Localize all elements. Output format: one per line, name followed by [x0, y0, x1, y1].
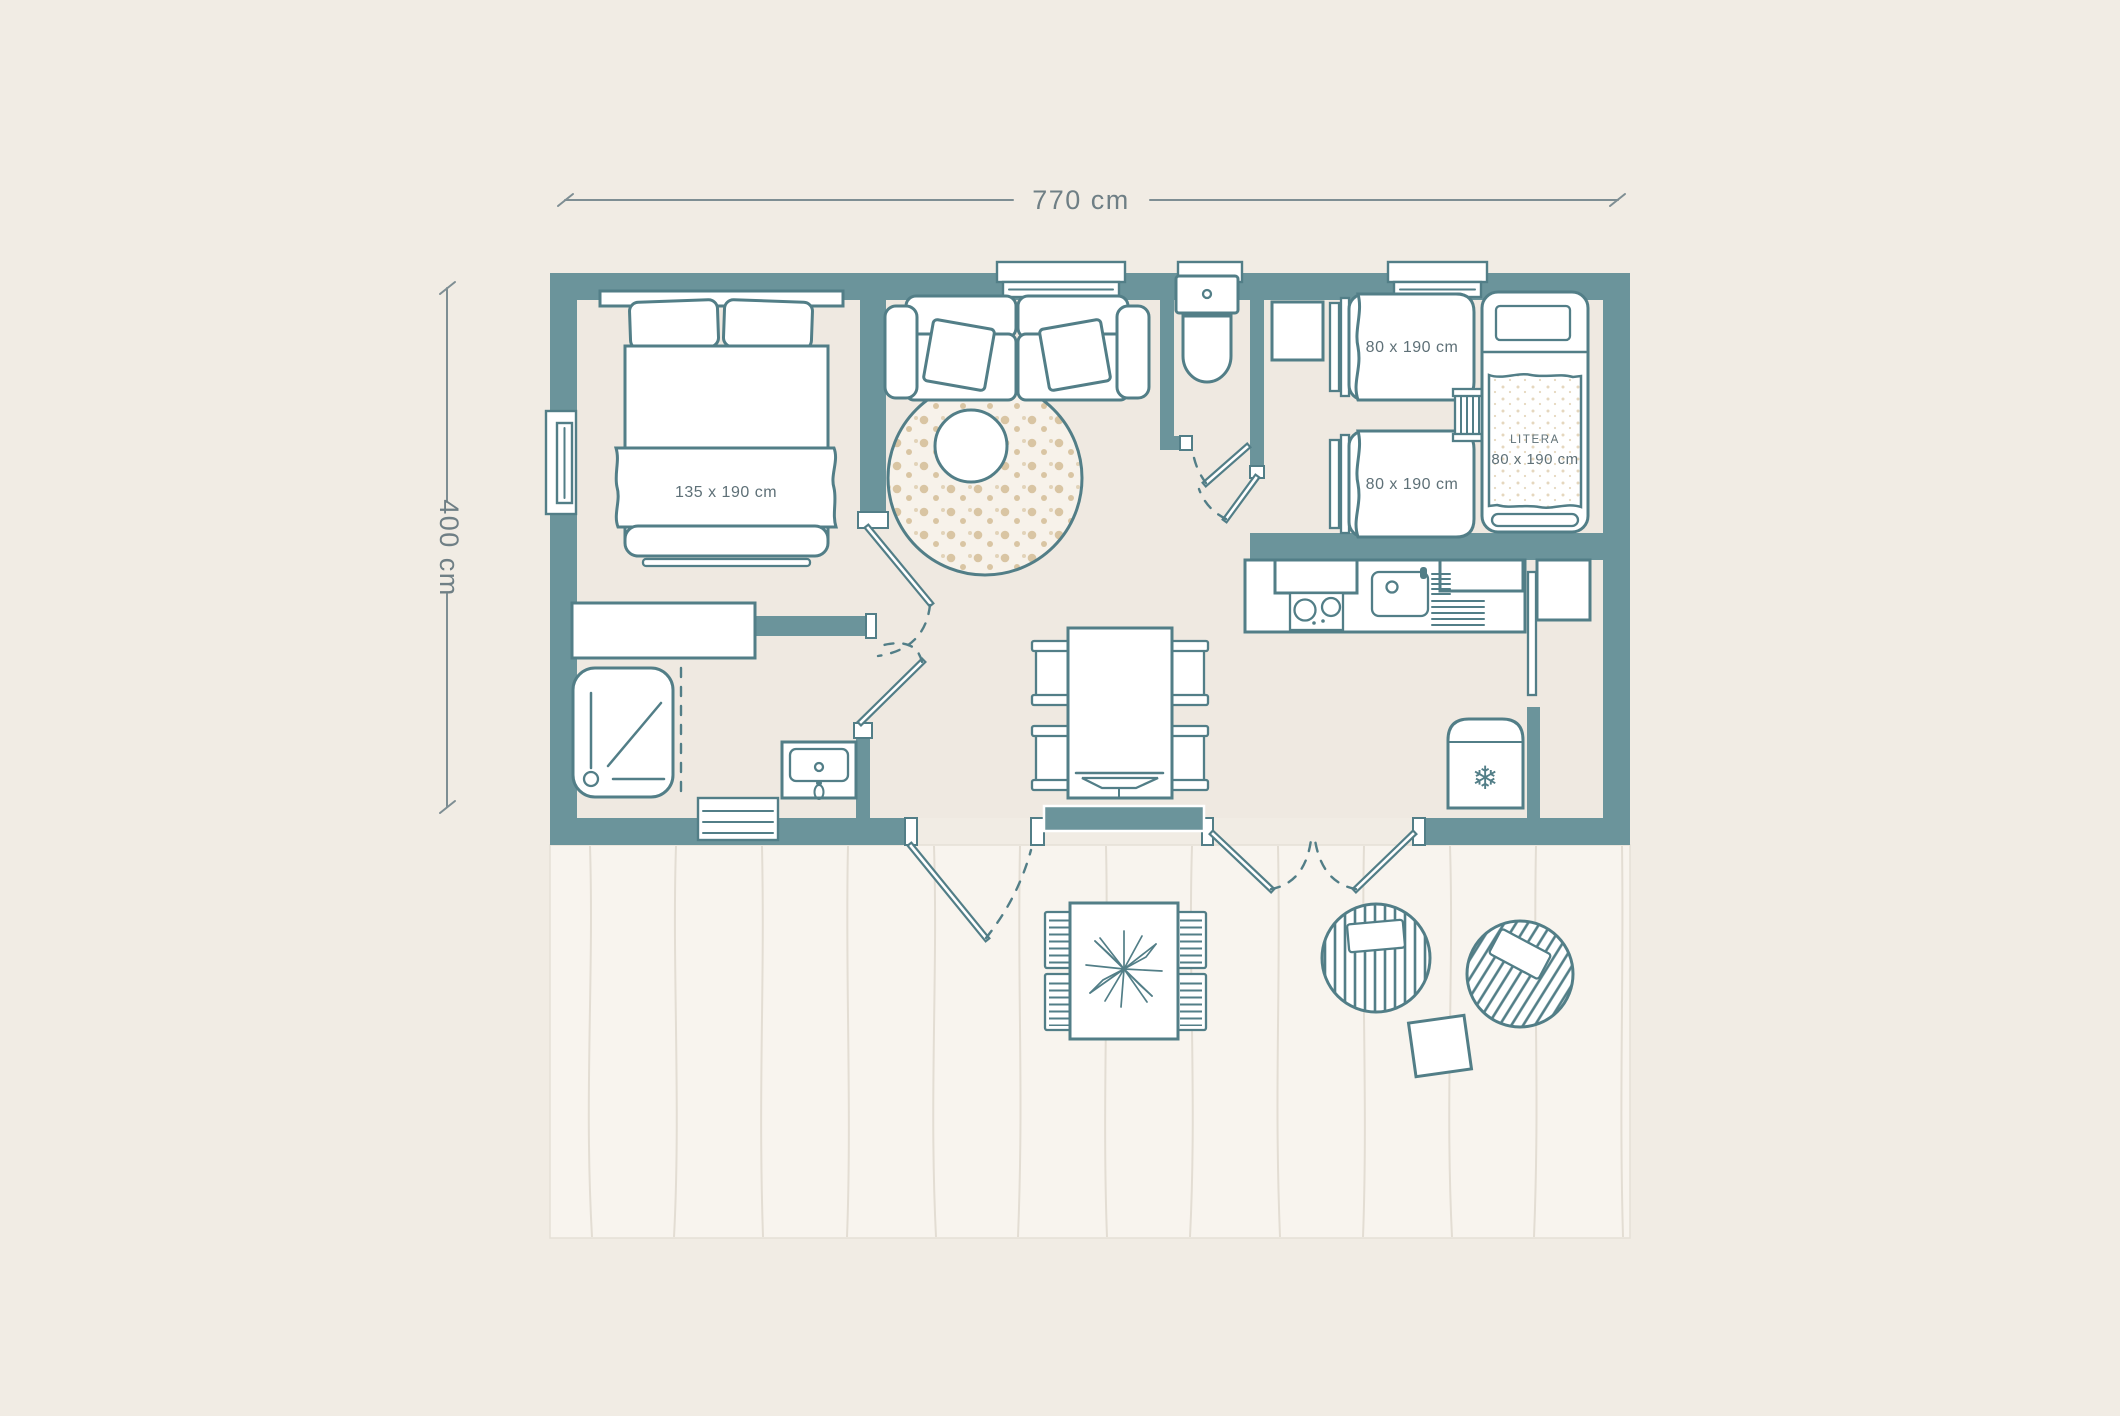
door-post: [1031, 818, 1044, 845]
bunk-bed: LITERA 80 x 190 cm: [1482, 292, 1588, 532]
pillow: [723, 299, 813, 349]
wall-bathroom-right: [1250, 300, 1264, 478]
pillow: [629, 299, 719, 349]
shower-tray: [573, 668, 673, 797]
throw-pillow: [923, 319, 995, 391]
floor-plan: 135 x 190 cm: [0, 0, 2120, 1416]
sofa-armrest: [885, 306, 917, 398]
width-dimension-label: 770 cm: [1032, 185, 1130, 215]
sink-faucet: [1420, 567, 1427, 579]
single-bed-bottom-label: 80 x 190 cm: [1366, 476, 1459, 493]
single-bed-bottom: 80 x 190 cm: [1330, 431, 1474, 537]
sink-drain: [1387, 582, 1398, 593]
lounge-chair: [1467, 921, 1573, 1027]
toilet: [1176, 276, 1238, 382]
wall-bottom-right: [1415, 818, 1630, 845]
coffee-table: [935, 410, 1007, 482]
footboard: [625, 526, 828, 556]
throw-pillow: [1039, 319, 1111, 391]
single-bed-top-label: 80 x 190 cm: [1366, 339, 1459, 356]
lounge-chair: [1322, 904, 1430, 1012]
door-post: [1180, 436, 1192, 450]
height-dimension-label: 400 cm: [434, 499, 464, 597]
sliding-door-panel: [1044, 806, 1204, 831]
washbasin: [782, 742, 856, 799]
sofa: [885, 296, 1149, 400]
bunk-bed-label-1: LITERA: [1510, 434, 1560, 446]
outdoor-chair: [1176, 974, 1206, 1030]
shower-drain: [584, 772, 598, 786]
window-left-wall: [546, 411, 576, 514]
bathroom: [1176, 276, 1238, 382]
open-door-leaf: [1528, 572, 1536, 695]
kitchen-sink: [1372, 567, 1428, 616]
floor-plan-canvas: 135 x 190 cm: [0, 0, 2120, 1416]
door-post: [905, 818, 917, 845]
bunk-bed-label-2: 80 x 190 cm: [1491, 451, 1578, 468]
bunk-pillow: [1496, 306, 1570, 340]
double-bed-label: 135 x 190 cm: [675, 484, 777, 501]
wall-partition: [755, 616, 866, 636]
bunk-ladder: [1453, 389, 1485, 441]
side-table: [1409, 1015, 1472, 1076]
door-post: [854, 723, 872, 738]
stove: [1290, 593, 1343, 630]
wall-kitchen-stub: [1527, 707, 1540, 818]
wardrobe: [572, 603, 755, 658]
bedside-cabinet: [1272, 302, 1323, 360]
snowflake-icon: ❄: [1472, 759, 1499, 797]
wall-bedroom-divider: [860, 300, 886, 512]
window-bottom-wall: [698, 798, 778, 840]
upper-cabinet-right: [1440, 560, 1523, 591]
sofa-armrest: [1117, 306, 1149, 398]
wall-stub-hall: [856, 737, 870, 818]
burner: [1295, 600, 1316, 621]
burner: [1322, 598, 1340, 616]
outdoor-chair: [1176, 912, 1206, 968]
fridge: ❄: [1448, 719, 1523, 808]
wall-bathroom-left: [1160, 300, 1174, 450]
tall-cabinet: [1537, 560, 1590, 620]
single-bed-top: 80 x 190 cm: [1330, 294, 1474, 400]
door-post: [858, 512, 888, 528]
bunk-footboard: [1492, 514, 1578, 526]
basin-drain: [815, 763, 823, 771]
lounge-pillow: [1347, 920, 1405, 953]
window-living-room: [997, 262, 1125, 297]
partition-end-post: [866, 614, 876, 638]
upper-cabinet-left: [1275, 560, 1357, 593]
window-kids-bedroom: [1388, 262, 1487, 297]
